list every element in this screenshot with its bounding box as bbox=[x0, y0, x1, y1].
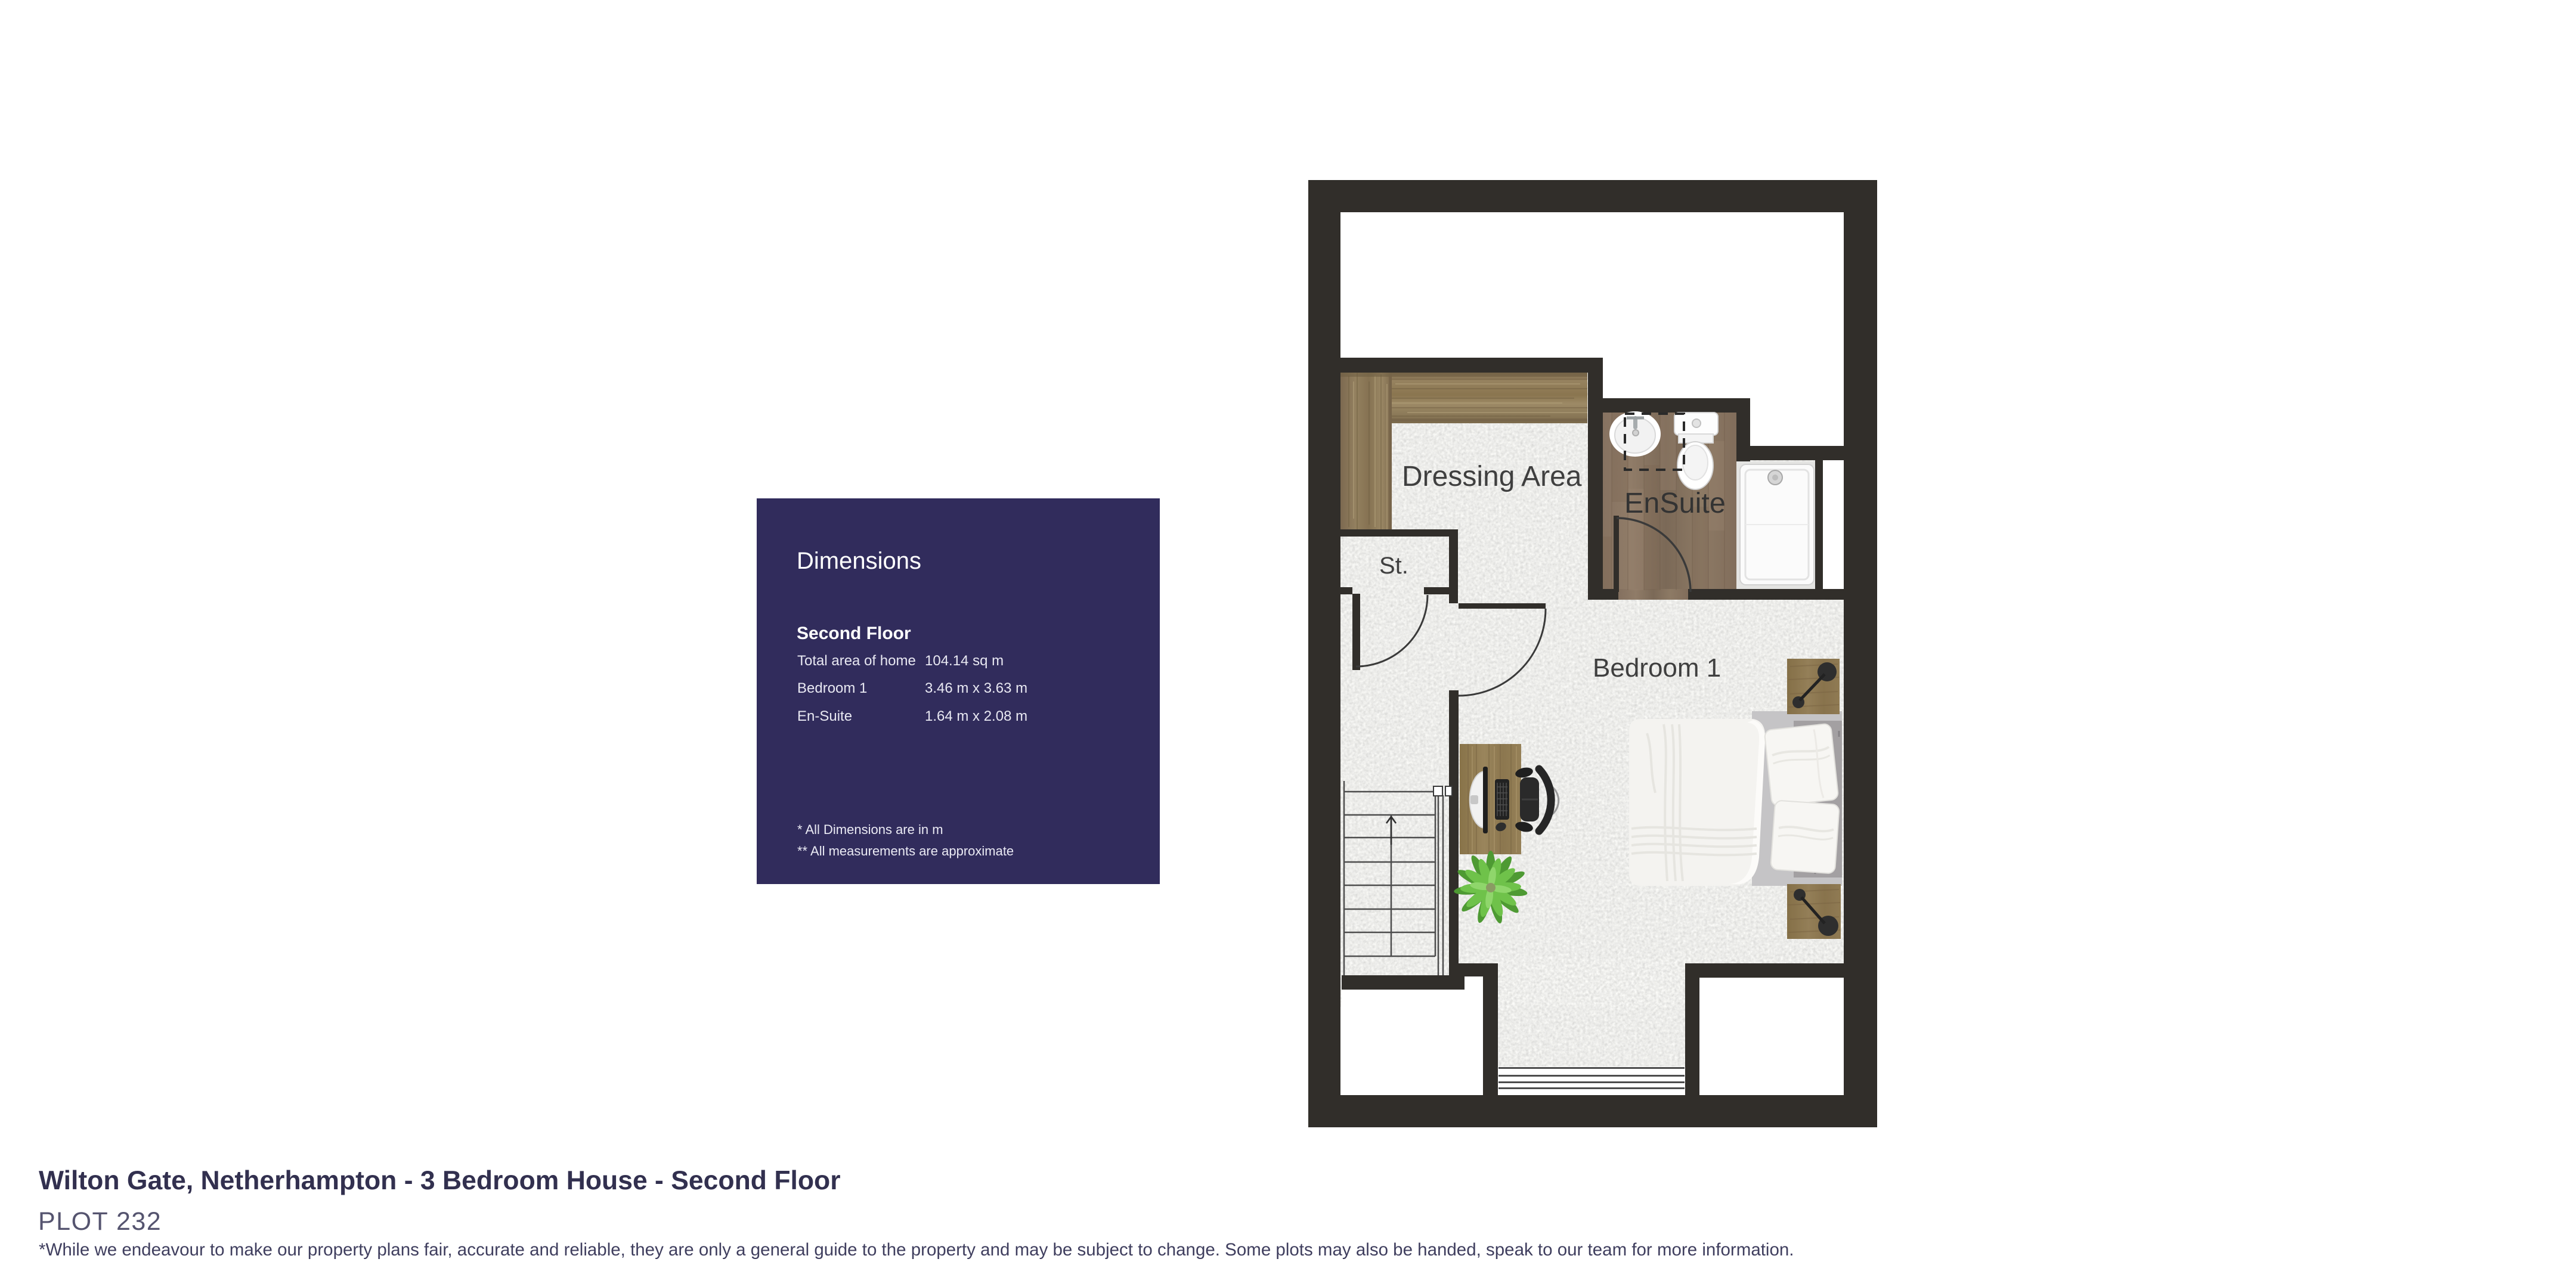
svg-text:EnSuite: EnSuite bbox=[1624, 487, 1726, 519]
svg-text:Dressing Area: Dressing Area bbox=[1402, 461, 1582, 492]
svg-text:Bedroom 1: Bedroom 1 bbox=[1593, 653, 1721, 683]
svg-text:St.: St. bbox=[1379, 553, 1408, 579]
